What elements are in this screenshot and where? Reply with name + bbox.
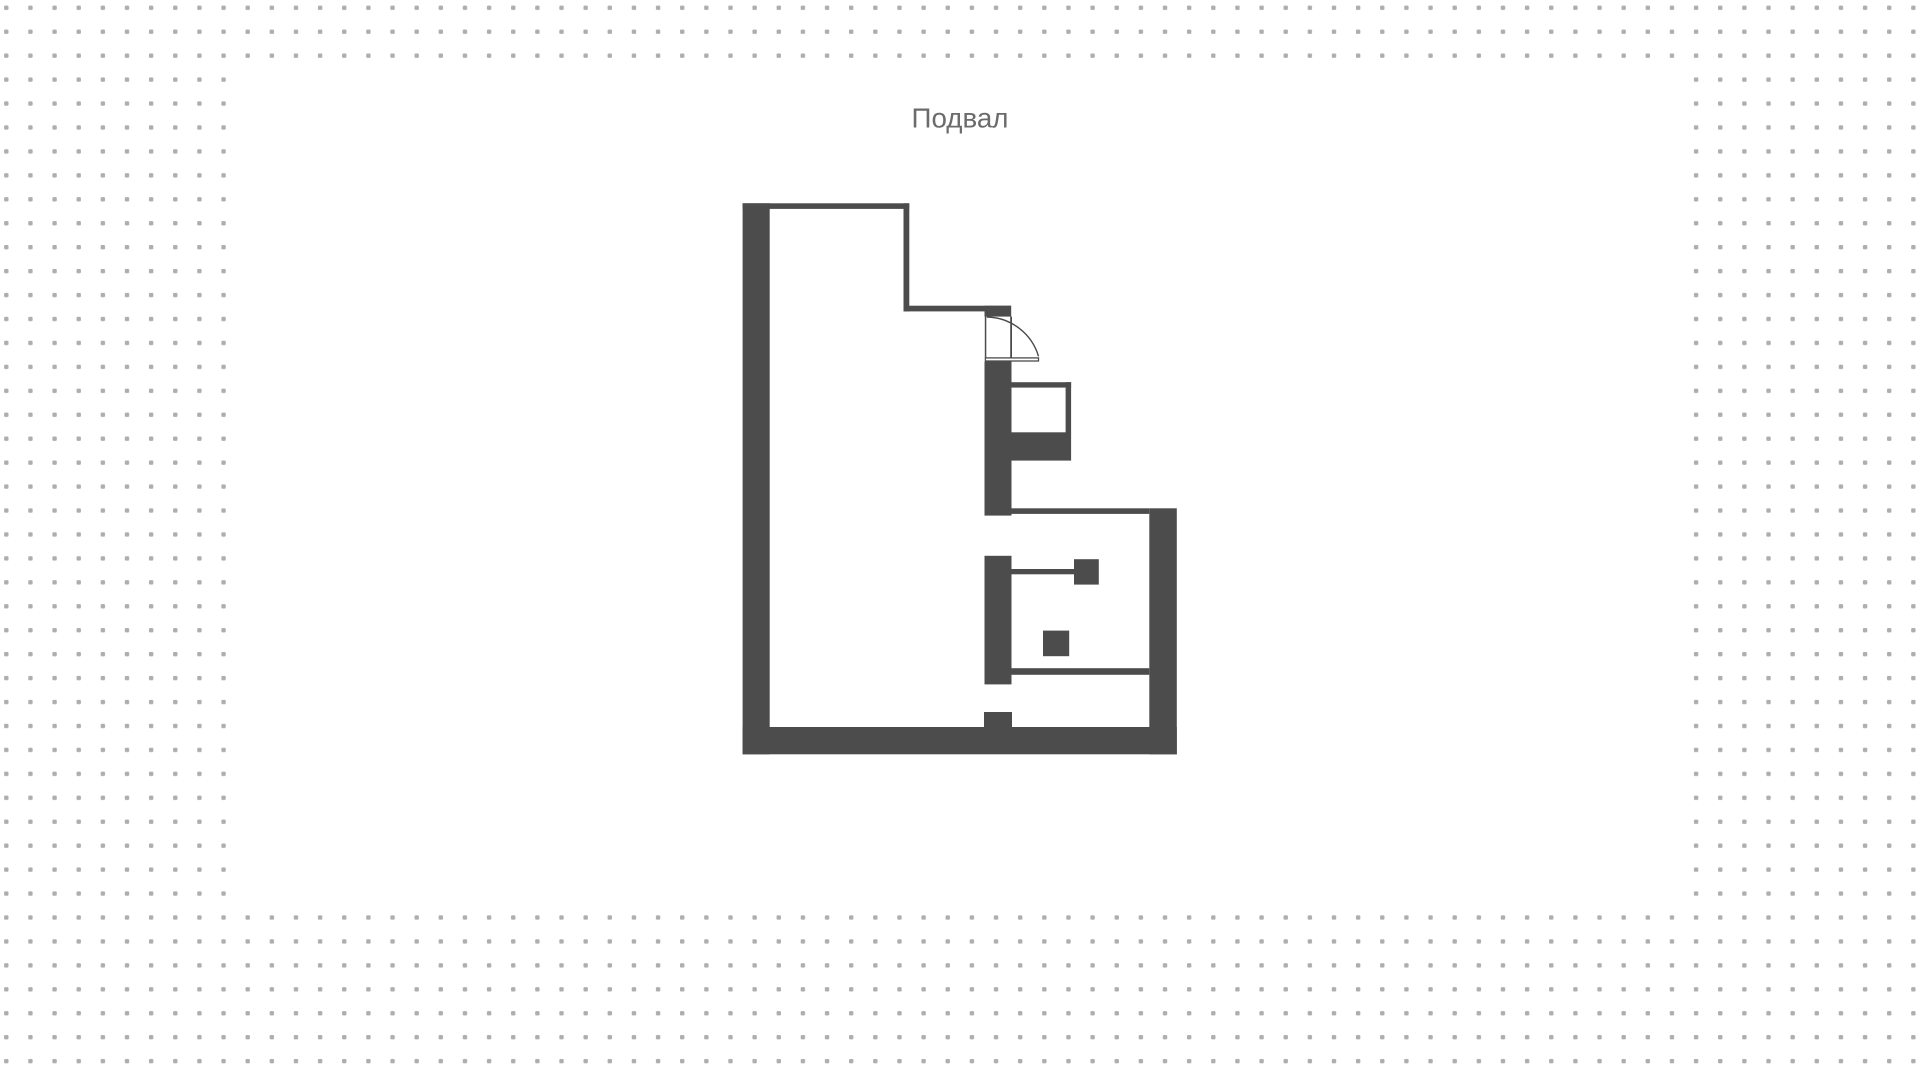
svg-text:Подвал: Подвал <box>912 102 1009 133</box>
